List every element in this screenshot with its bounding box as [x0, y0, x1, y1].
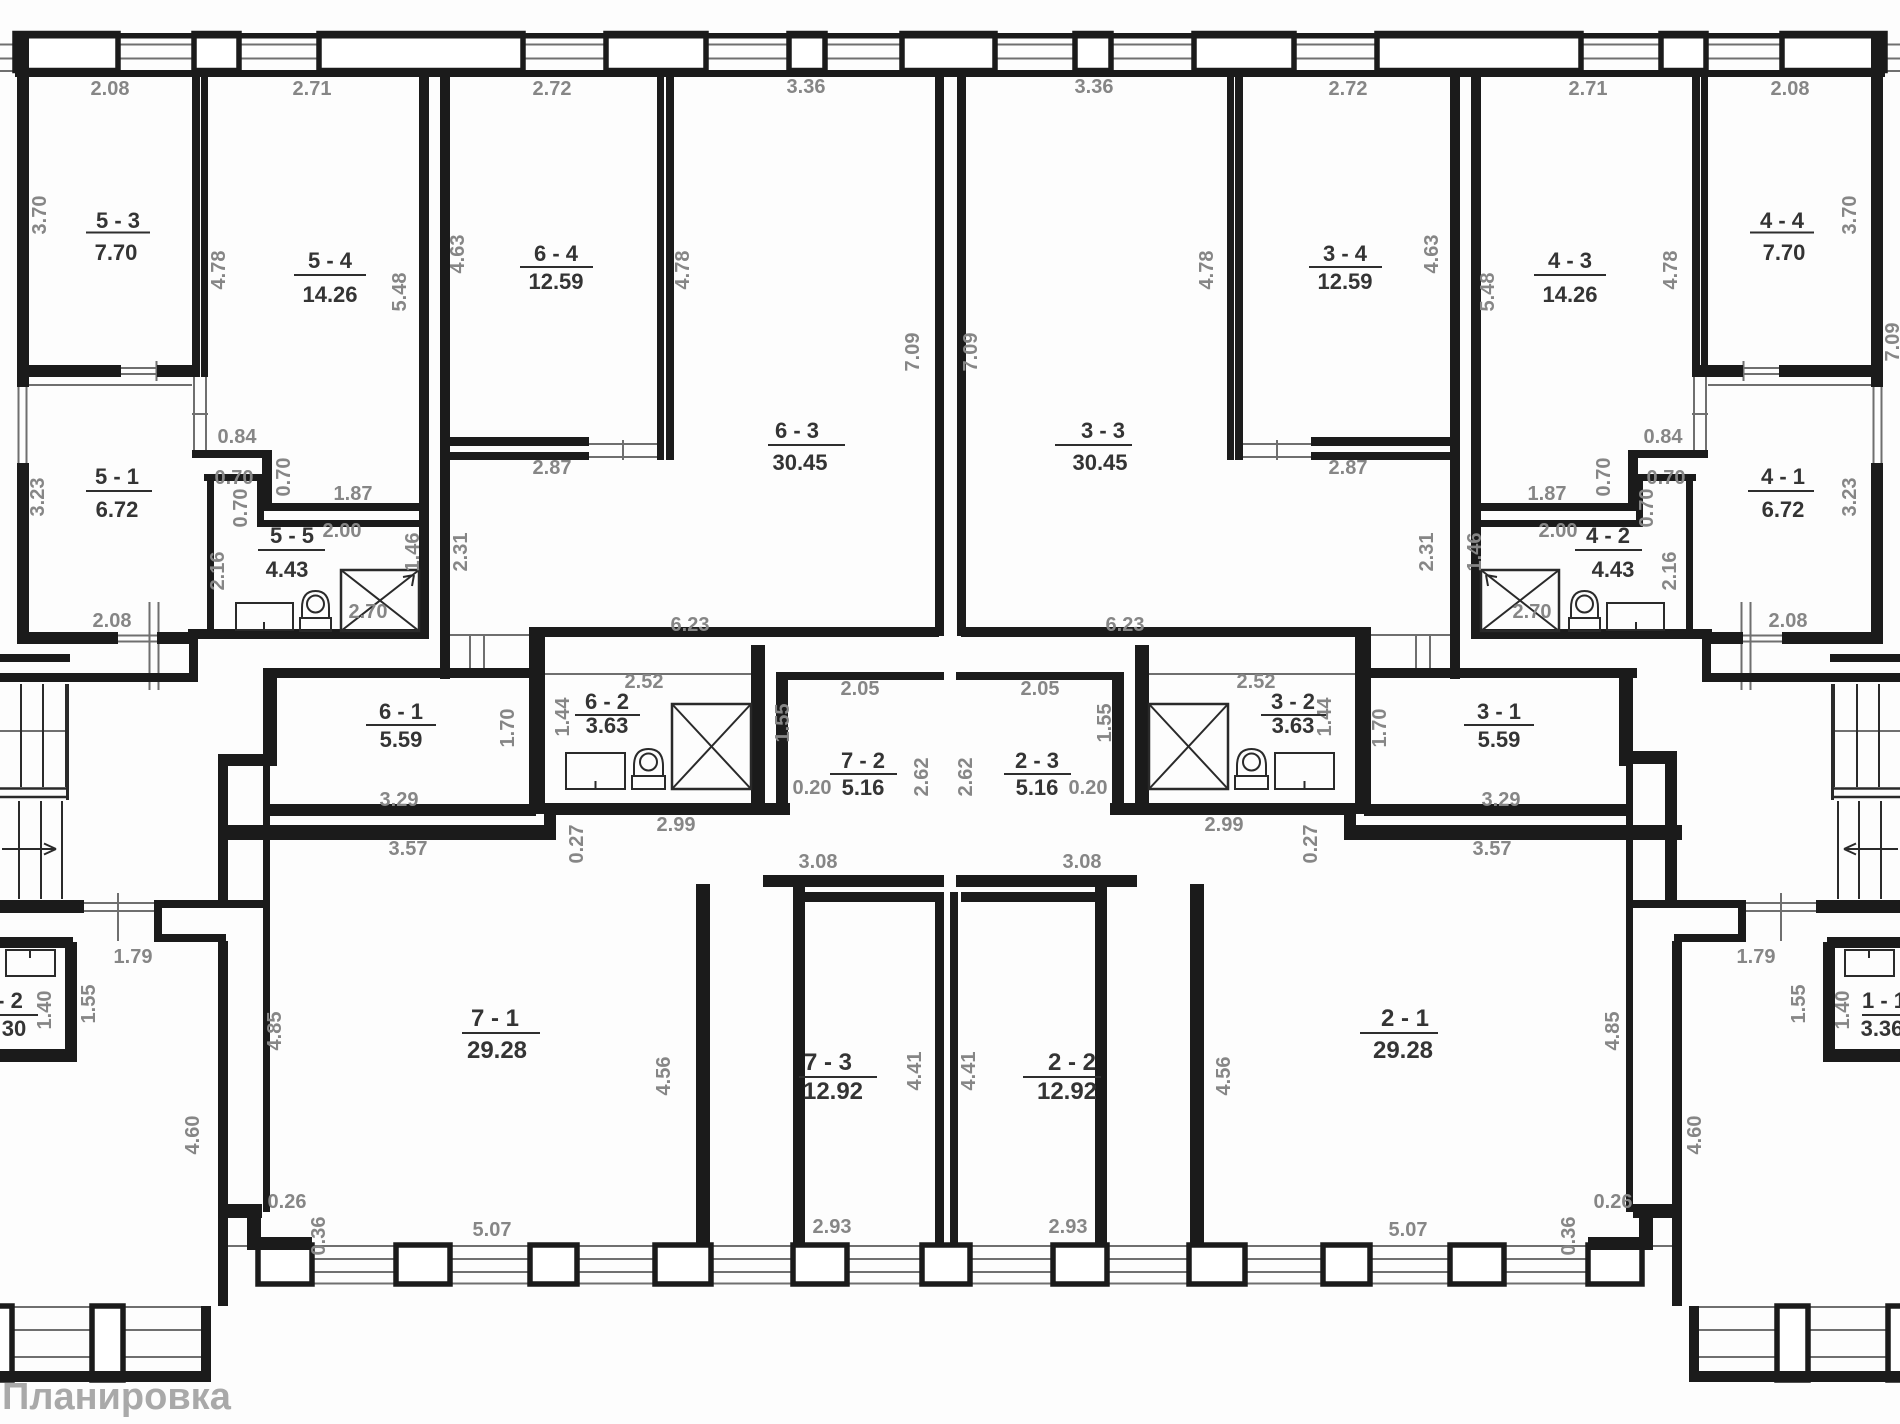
svg-text:6 - 4: 6 - 4 — [534, 241, 579, 266]
svg-text:2.08: 2.08 — [91, 78, 130, 100]
svg-text:2.16: 2.16 — [1659, 552, 1681, 591]
svg-text:2 - 2: 2 - 2 — [1048, 1049, 1096, 1076]
svg-text:4 - 4: 4 - 4 — [1760, 208, 1805, 233]
svg-text:5 - 4: 5 - 4 — [308, 248, 353, 273]
svg-text:6 - 1: 6 - 1 — [379, 699, 423, 724]
svg-text:0.36: 0.36 — [308, 1217, 330, 1256]
svg-text:6.72: 6.72 — [1762, 497, 1805, 522]
svg-text:3 - 3: 3 - 3 — [1081, 418, 1125, 443]
svg-text:12.92: 12.92 — [803, 1078, 863, 1105]
svg-text:4.41: 4.41 — [958, 1052, 980, 1091]
svg-text:4 - 1: 4 - 1 — [1761, 464, 1805, 489]
svg-text:4.56: 4.56 — [1213, 1057, 1235, 1096]
svg-text:3 - 2: 3 - 2 — [1271, 689, 1315, 714]
svg-text:2.62: 2.62 — [911, 758, 933, 797]
svg-text:4.43: 4.43 — [1592, 557, 1635, 582]
svg-text:6 - 3: 6 - 3 — [775, 418, 819, 443]
svg-text:1.55: 1.55 — [78, 985, 100, 1024]
svg-text:1.79: 1.79 — [1737, 946, 1776, 968]
svg-text:14.26: 14.26 — [302, 282, 357, 307]
svg-text:30.45: 30.45 — [1072, 450, 1127, 475]
svg-text:2.72: 2.72 — [1329, 78, 1368, 100]
svg-text:1.70: 1.70 — [1369, 709, 1391, 748]
svg-text:Планировка: Планировка — [2, 1376, 232, 1418]
svg-text:2.08: 2.08 — [1769, 610, 1808, 632]
svg-text:7 - 3: 7 - 3 — [804, 1049, 852, 1076]
svg-text:1.70: 1.70 — [497, 709, 519, 748]
svg-text:4.78: 4.78 — [1660, 251, 1682, 290]
svg-text:1.46: 1.46 — [402, 533, 424, 572]
svg-text:7.70: 7.70 — [95, 240, 138, 265]
svg-text:14.26: 14.26 — [1542, 282, 1597, 307]
svg-text:2.31: 2.31 — [450, 533, 472, 572]
svg-text:2.70: 2.70 — [1513, 601, 1552, 623]
svg-text:7.09: 7.09 — [960, 333, 982, 372]
svg-text:2.87: 2.87 — [533, 457, 572, 479]
svg-text:4.78: 4.78 — [1196, 251, 1218, 290]
svg-text:3.36: 3.36 — [1861, 1016, 1900, 1041]
svg-text:2.70: 2.70 — [349, 601, 388, 623]
svg-text:4.78: 4.78 — [672, 251, 694, 290]
svg-text:5.16: 5.16 — [842, 775, 885, 800]
svg-text:3 - 4: 3 - 4 — [1323, 241, 1368, 266]
svg-text:4.78: 4.78 — [208, 251, 230, 290]
svg-text:5.59: 5.59 — [380, 727, 423, 752]
svg-text:1.55: 1.55 — [1094, 704, 1116, 743]
svg-text:0.70: 0.70 — [230, 489, 252, 528]
svg-text:0.70: 0.70 — [1647, 467, 1686, 489]
svg-text:4.60: 4.60 — [1684, 1116, 1706, 1155]
svg-text:4.41: 4.41 — [904, 1052, 926, 1091]
svg-text:4.85: 4.85 — [1602, 1012, 1624, 1051]
svg-text:3 - 1: 3 - 1 — [1477, 699, 1521, 724]
svg-text:12.92: 12.92 — [1037, 1078, 1097, 1105]
svg-text:0.70: 0.70 — [273, 458, 295, 497]
svg-text:29.28: 29.28 — [467, 1037, 527, 1064]
svg-text:4.63: 4.63 — [1421, 235, 1443, 274]
svg-text:6.23: 6.23 — [671, 614, 710, 636]
svg-text:1.87: 1.87 — [1528, 483, 1567, 505]
svg-text:1.44: 1.44 — [1314, 697, 1336, 737]
svg-text:5.07: 5.07 — [1389, 1219, 1428, 1241]
svg-text:3.70: 3.70 — [29, 196, 51, 235]
svg-text:2.00: 2.00 — [1539, 520, 1578, 542]
svg-text:0.27: 0.27 — [1300, 825, 1322, 864]
svg-text:0.84: 0.84 — [218, 426, 258, 448]
svg-text:5.16: 5.16 — [1016, 775, 1059, 800]
svg-text:0.70: 0.70 — [1593, 458, 1615, 497]
svg-text:2.72: 2.72 — [533, 78, 572, 100]
svg-text:2.00: 2.00 — [323, 520, 362, 542]
svg-text:2.05: 2.05 — [841, 678, 880, 700]
svg-text:7.09: 7.09 — [902, 333, 924, 372]
svg-text:1.55: 1.55 — [1788, 985, 1810, 1024]
svg-text:5 - 1: 5 - 1 — [95, 464, 139, 489]
svg-text:2 - 1: 2 - 1 — [1381, 1005, 1429, 1032]
svg-text:1.87: 1.87 — [334, 483, 373, 505]
svg-text:4.85: 4.85 — [264, 1012, 286, 1051]
svg-text:1.46: 1.46 — [1464, 533, 1486, 572]
svg-text:2.31: 2.31 — [1416, 533, 1438, 572]
svg-text:- 2: - 2 — [0, 988, 23, 1013]
svg-text:5.48: 5.48 — [1477, 273, 1499, 312]
svg-text:2 - 3: 2 - 3 — [1015, 748, 1059, 773]
svg-text:4 - 2: 4 - 2 — [1586, 523, 1630, 548]
svg-text:5 - 5: 5 - 5 — [270, 523, 314, 548]
svg-text:2.87: 2.87 — [1329, 457, 1368, 479]
svg-text:3.23: 3.23 — [27, 478, 49, 517]
svg-text:1.40: 1.40 — [1832, 991, 1854, 1030]
svg-text:3.63: 3.63 — [586, 713, 629, 738]
svg-text:1.55: 1.55 — [772, 704, 794, 743]
svg-text:29.28: 29.28 — [1373, 1037, 1433, 1064]
svg-text:1.79: 1.79 — [114, 946, 153, 968]
svg-text:4 - 3: 4 - 3 — [1548, 248, 1592, 273]
svg-text:4.60: 4.60 — [182, 1116, 204, 1155]
svg-text:6 - 2: 6 - 2 — [585, 689, 629, 714]
svg-text:0.20: 0.20 — [793, 777, 832, 799]
svg-text:2.93: 2.93 — [813, 1216, 852, 1238]
svg-text:0.26: 0.26 — [268, 1191, 307, 1213]
svg-text:3.29: 3.29 — [380, 789, 419, 811]
svg-text:0.26: 0.26 — [1594, 1191, 1633, 1213]
svg-text:3.70: 3.70 — [1839, 196, 1861, 235]
svg-text:2.93: 2.93 — [1049, 1216, 1088, 1238]
svg-text:2.08: 2.08 — [1771, 78, 1810, 100]
svg-text:1.44: 1.44 — [552, 697, 574, 737]
svg-text:3.57: 3.57 — [1473, 838, 1512, 860]
svg-text:2.52: 2.52 — [1237, 671, 1276, 693]
svg-text:4.56: 4.56 — [653, 1057, 675, 1096]
svg-text:3.57: 3.57 — [389, 838, 428, 860]
svg-text:30.45: 30.45 — [772, 450, 827, 475]
svg-text:5.48: 5.48 — [389, 273, 411, 312]
svg-text:7.09: 7.09 — [1882, 323, 1900, 362]
svg-text:2.62: 2.62 — [955, 758, 977, 797]
svg-text:2.99: 2.99 — [657, 814, 696, 836]
svg-text:0.36: 0.36 — [1558, 1217, 1580, 1256]
svg-text:4.63: 4.63 — [447, 235, 469, 274]
svg-text:0.27: 0.27 — [566, 825, 588, 864]
svg-text:7.70: 7.70 — [1763, 240, 1806, 265]
svg-text:4.43: 4.43 — [266, 557, 309, 582]
svg-text:3.08: 3.08 — [1063, 851, 1102, 873]
svg-text:3.36: 3.36 — [1075, 76, 1114, 98]
svg-text:0.70: 0.70 — [215, 467, 254, 489]
svg-text:2.08: 2.08 — [93, 610, 132, 632]
svg-text:2.05: 2.05 — [1021, 678, 1060, 700]
svg-text:3.63: 3.63 — [1272, 713, 1315, 738]
svg-text:0.84: 0.84 — [1644, 426, 1684, 448]
svg-text:2.16: 2.16 — [207, 552, 229, 591]
svg-text:6.72: 6.72 — [96, 497, 139, 522]
svg-text:5 - 3: 5 - 3 — [96, 208, 140, 233]
svg-text:3.36: 3.36 — [787, 76, 826, 98]
svg-text:2.71: 2.71 — [1569, 78, 1608, 100]
svg-text:30: 30 — [2, 1016, 26, 1041]
svg-text:1.40: 1.40 — [34, 991, 56, 1030]
svg-text:3.29: 3.29 — [1482, 789, 1521, 811]
svg-text:0.70: 0.70 — [1636, 489, 1658, 528]
svg-text:5.07: 5.07 — [473, 1219, 512, 1241]
svg-text:3.23: 3.23 — [1839, 478, 1861, 517]
svg-text:6.23: 6.23 — [1106, 614, 1145, 636]
svg-text:5.59: 5.59 — [1478, 727, 1521, 752]
svg-text:12.59: 12.59 — [528, 269, 583, 294]
svg-text:7 - 1: 7 - 1 — [471, 1005, 519, 1032]
svg-text:2.52: 2.52 — [625, 671, 664, 693]
svg-text:0.20: 0.20 — [1069, 777, 1108, 799]
svg-text:1 - 1: 1 - 1 — [1862, 988, 1900, 1013]
svg-text:7 - 2: 7 - 2 — [841, 748, 885, 773]
svg-text:12.59: 12.59 — [1317, 269, 1372, 294]
svg-text:7.09: 7.09 — [0, 326, 4, 365]
svg-text:3.08: 3.08 — [799, 851, 838, 873]
svg-text:2.71: 2.71 — [293, 78, 332, 100]
svg-text:2.99: 2.99 — [1205, 814, 1244, 836]
